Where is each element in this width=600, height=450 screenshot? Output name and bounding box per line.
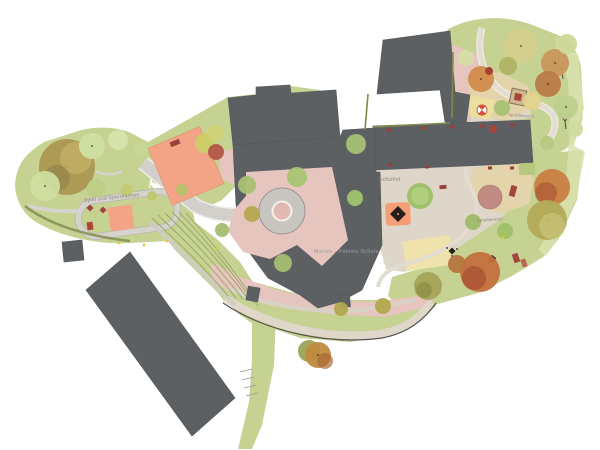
spinner-dot: [446, 247, 448, 249]
lamp-dot: [166, 240, 169, 243]
hedge-line: [452, 52, 453, 118]
dusty-pink-circle: [478, 185, 502, 209]
spinner-dot: [456, 248, 458, 250]
tree-stem: [520, 45, 522, 47]
bench: [510, 166, 514, 169]
zone-bottom-strip: [238, 314, 276, 449]
bench: [488, 166, 492, 169]
hedge-line: [365, 94, 368, 130]
tree-stem: [44, 185, 46, 187]
tree-stem: [547, 83, 549, 85]
building-left-block: [228, 85, 340, 145]
tree-stem: [554, 62, 556, 64]
tree-stem: [480, 78, 482, 80]
tree: [238, 176, 256, 194]
tree: [375, 298, 391, 314]
bench: [388, 163, 392, 166]
tree: [539, 213, 565, 239]
tree: [523, 92, 541, 110]
tree: [334, 302, 348, 316]
bench: [425, 165, 429, 168]
label-building-name: Marien - Palmes Schule: [314, 249, 379, 255]
tree: [557, 34, 577, 54]
tree: [108, 130, 128, 150]
bench: [386, 128, 391, 131]
tree: [448, 255, 466, 273]
tree-stem: [91, 145, 93, 147]
tree: [462, 266, 486, 290]
tree: [458, 50, 474, 66]
green-pocket: [519, 163, 536, 176]
play-box: [86, 222, 93, 231]
bench: [439, 185, 446, 190]
bench: [421, 126, 426, 129]
tree: [485, 67, 493, 75]
tree-stem: [317, 354, 319, 356]
tree: [317, 353, 333, 369]
tree: [207, 125, 223, 141]
lamp-dot: [502, 236, 505, 239]
stair-step: [240, 369, 252, 372]
bench: [509, 123, 514, 126]
tree: [176, 184, 188, 196]
tree: [208, 144, 224, 160]
tree: [274, 254, 292, 272]
tree: [416, 282, 432, 298]
tree-stem: [565, 106, 567, 108]
bench: [449, 125, 454, 128]
building-small-annex: [62, 240, 84, 262]
lamp-dot: [216, 247, 219, 250]
play-court: [107, 204, 134, 231]
bench: [480, 124, 485, 127]
label-schulhof: Schulhof: [379, 177, 401, 183]
carousel-hub: [397, 213, 399, 215]
tree: [215, 223, 229, 237]
tree: [411, 187, 429, 205]
site-plan: Spiel und Sportflächen Schulhof Spielber…: [0, 0, 600, 450]
tree: [87, 179, 105, 197]
tree: [244, 206, 260, 222]
building-south-bump: [246, 286, 260, 302]
lamp-dot: [143, 244, 146, 247]
tree: [346, 134, 366, 154]
tree: [567, 121, 583, 137]
climbing-frame-mat: [514, 93, 522, 101]
tree: [540, 136, 554, 150]
tree: [347, 190, 363, 206]
tree: [147, 191, 157, 201]
tree: [497, 223, 513, 239]
tree: [133, 143, 147, 157]
tree: [499, 57, 517, 75]
lamp-dot: [118, 242, 121, 245]
tree: [489, 125, 497, 133]
tree: [287, 167, 307, 187]
plaza-center: [273, 202, 292, 221]
